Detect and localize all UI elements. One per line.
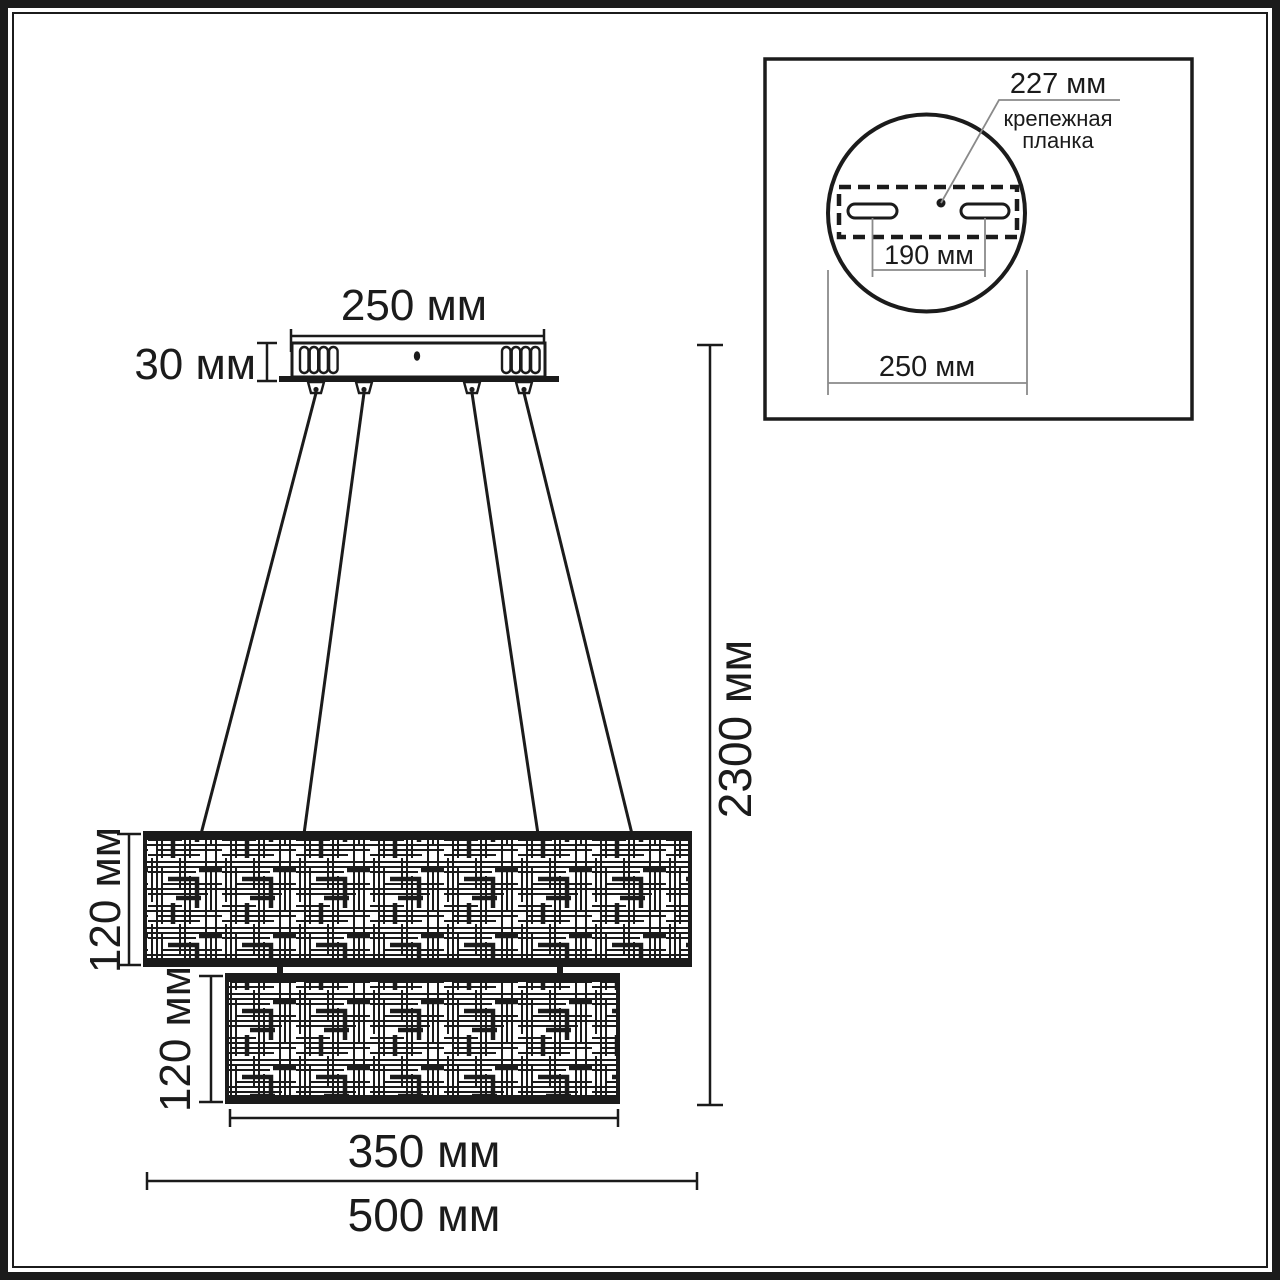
- bracket-slot-right: [961, 204, 1009, 218]
- lower-shade-frame: [227, 975, 618, 1102]
- canopy-height-label: 30 мм: [134, 340, 256, 389]
- upper-shade-frame: [145, 833, 690, 965]
- suspension-cable-3: [472, 393, 538, 834]
- cable-connectors: [308, 382, 532, 393]
- suspension-cables: [201, 393, 632, 834]
- mounting-detail-panel: 227 мм крепежная планка 190 мм 250 мм: [765, 59, 1192, 419]
- canopy-crystal-ribs-right: [502, 347, 540, 373]
- lower-shade-top-rim: [227, 975, 618, 982]
- lower-shade-height-dimension: [199, 976, 223, 1102]
- canopy-center-hole: [414, 351, 420, 361]
- lower-shade-width-label: 350 мм: [348, 1125, 501, 1177]
- dimension-drawing: 250 мм 30 мм: [0, 0, 1280, 1280]
- suspension-cable-1: [201, 393, 316, 834]
- lower-shade-height-label: 120 мм: [151, 966, 200, 1112]
- bracket-name-line2: планка: [1022, 128, 1094, 153]
- canopy-height-dimension: [257, 343, 277, 381]
- upper-shade-height-label: 120 мм: [81, 827, 130, 973]
- upper-shade-bottom-rim: [145, 958, 690, 965]
- base-diameter-label: 250 мм: [879, 351, 975, 383]
- diagram-page: 250 мм 30 мм: [0, 0, 1280, 1280]
- suspension-height-label: 2300 мм: [709, 640, 761, 818]
- connector-pins: [313, 387, 526, 392]
- slot-spacing-label: 190 мм: [884, 240, 974, 270]
- bracket-length-label: 227 мм: [1010, 68, 1106, 100]
- lower-shade-bottom-rim: [227, 1095, 618, 1102]
- lower-shade: [227, 975, 618, 1102]
- suspension-cable-4: [524, 393, 632, 834]
- suspension-cable-2: [304, 393, 364, 834]
- ceiling-canopy: [279, 343, 559, 393]
- upper-shade: [145, 833, 690, 965]
- upper-shade-width-label: 500 мм: [348, 1189, 501, 1241]
- bracket-slot-left: [848, 204, 897, 218]
- canopy-width-label: 250 мм: [341, 281, 487, 330]
- upper-shade-top-rim: [145, 833, 690, 840]
- canopy-crystal-ribs-left: [300, 347, 338, 373]
